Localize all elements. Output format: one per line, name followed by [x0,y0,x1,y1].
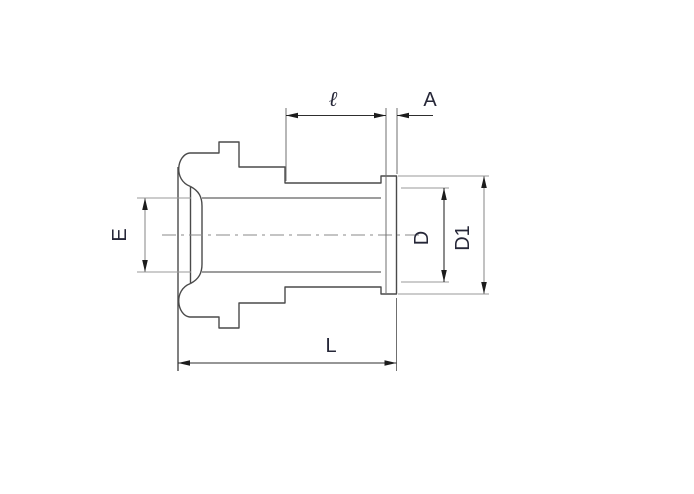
dim-label-left-diameter: E [109,228,131,241]
arrowhead-top [142,198,148,210]
arrowhead-right [385,360,397,366]
arrowhead-bottom [481,282,487,294]
arrowhead [397,113,409,119]
dim-tube-length: ℓ [286,87,386,293]
arrowhead-right [374,113,386,119]
arrowhead-top [481,176,487,188]
dim-label-end-thickness: A [423,89,437,111]
drawing-canvas: ℓ A E D [0,0,694,489]
arrowhead-top [441,188,447,200]
hex-chamfer-arc-top [179,153,191,187]
arrowhead-left [286,113,298,119]
hex-chamfer-arc-bottom [179,284,191,318]
arrowhead-bottom [142,260,148,272]
arrowhead-bottom [441,270,447,282]
dim-end-thickness: A [397,89,437,174]
dim-label-bore-diameter: D [411,231,433,245]
dim-label-tube-length: ℓ [329,87,338,111]
dim-overall-length: L [178,298,397,371]
arrowhead-left [178,360,190,366]
dim-label-flange-diameter: D1 [452,225,474,251]
dim-label-overall-length: L [325,335,336,357]
fitting-body [178,142,397,371]
fitting-dimension-drawing: ℓ A E D [0,0,694,489]
